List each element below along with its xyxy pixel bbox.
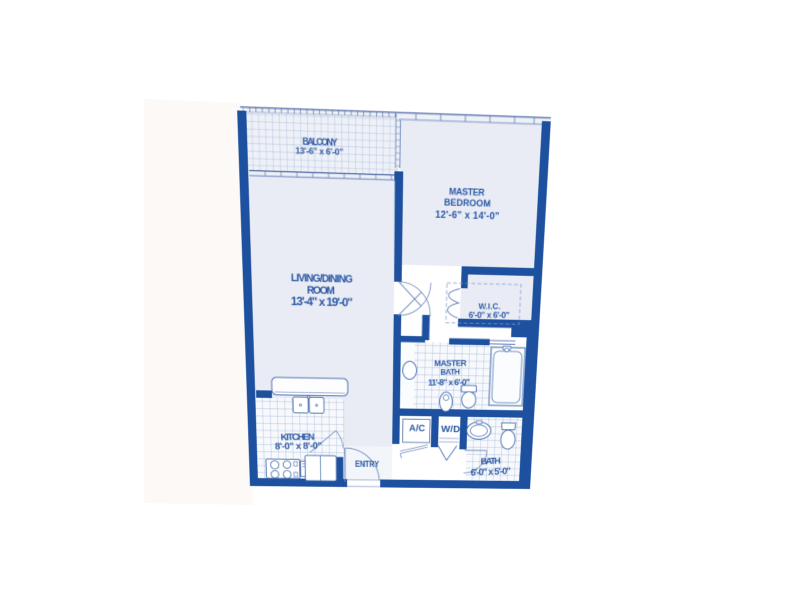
svg-text:W.I.C.: W.I.C. <box>478 302 500 311</box>
svg-text:11'-8" x 6'-0": 11'-8" x 6'-0" <box>428 378 470 388</box>
svg-text:BEDROOM: BEDROOM <box>444 198 491 210</box>
svg-text:W/D: W/D <box>441 424 460 434</box>
svg-text:MASTER: MASTER <box>449 187 485 199</box>
svg-text:6'-0" x 5'-0": 6'-0" x 5'-0" <box>471 466 511 478</box>
svg-text:8'-0" x 8'-0": 8'-0" x 8'-0" <box>275 441 322 452</box>
svg-text:6'-0" x 6'-0": 6'-0" x 6'-0" <box>469 311 510 321</box>
svg-text:13'-4" x 19'-0": 13'-4" x 19'-0" <box>291 294 353 309</box>
svg-text:BATH: BATH <box>440 368 460 377</box>
svg-text:A/C: A/C <box>409 423 425 433</box>
svg-text:13'-6" x 6'-0": 13'-6" x 6'-0" <box>295 145 343 157</box>
svg-text:12'-6" x 14'-0": 12'-6" x 14'-0" <box>435 209 500 222</box>
svg-text:BATH: BATH <box>481 456 501 467</box>
svg-text:ENTRY: ENTRY <box>355 460 379 470</box>
